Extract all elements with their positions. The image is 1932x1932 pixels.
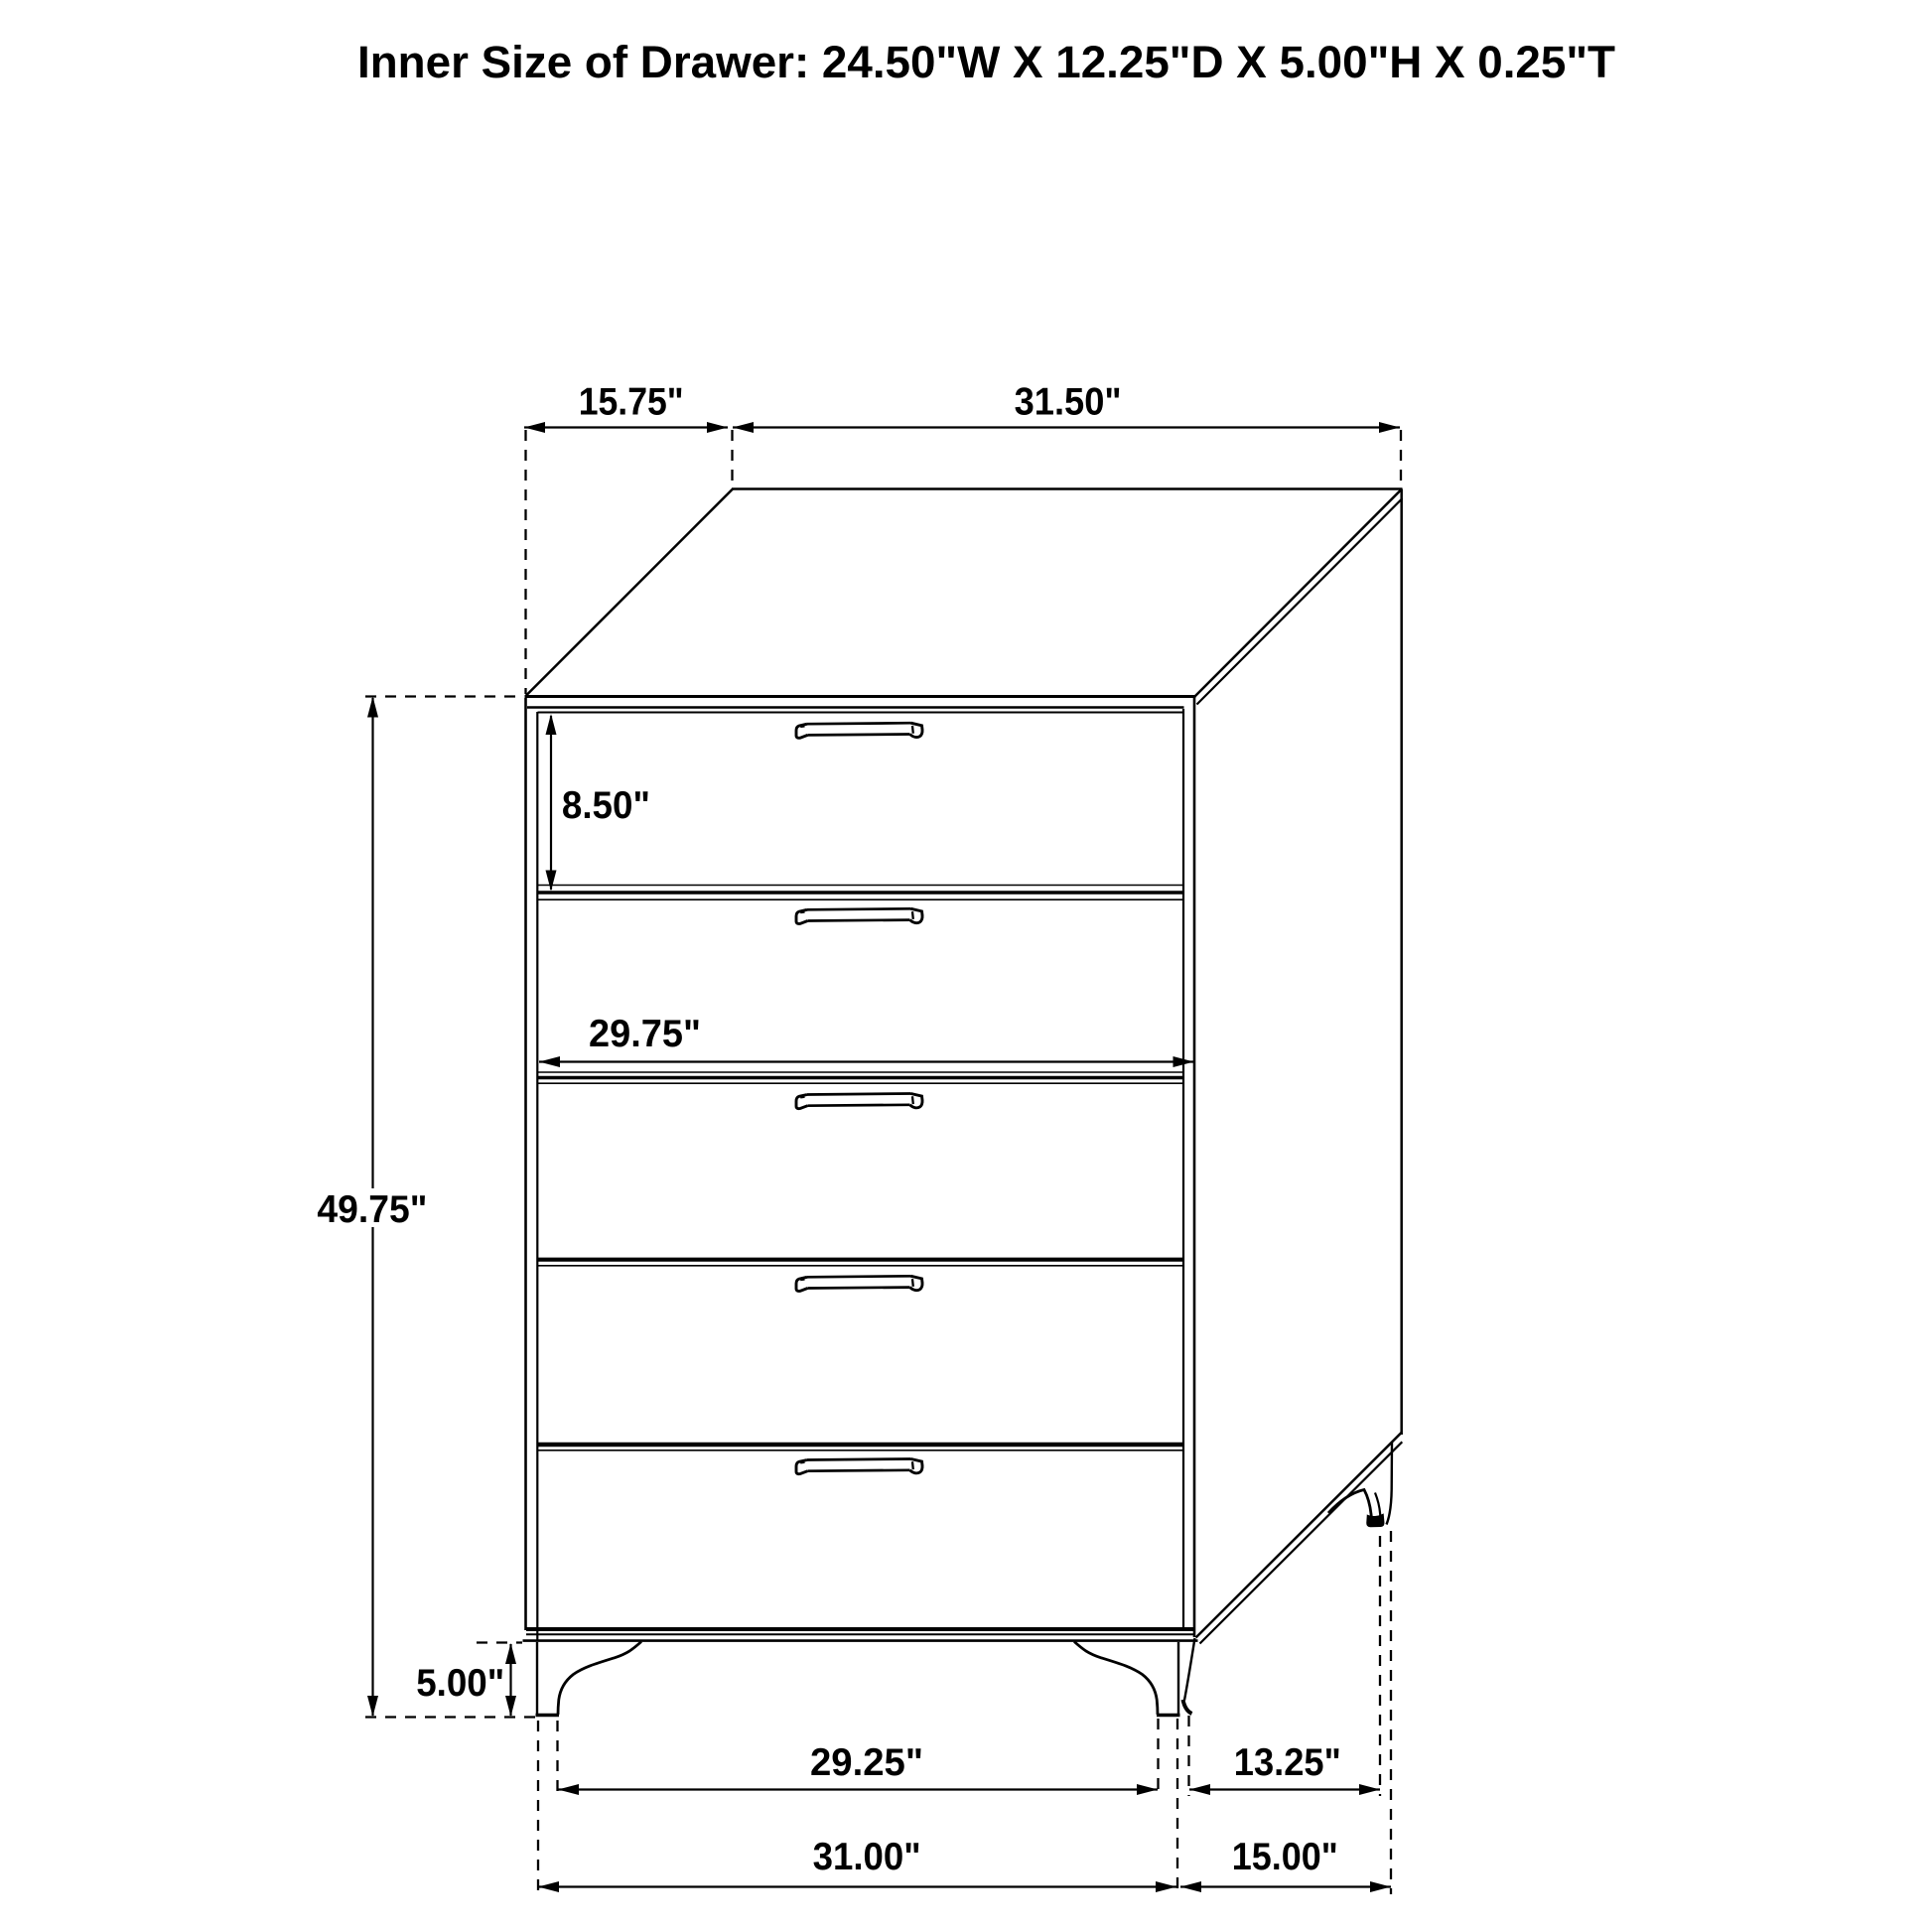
svg-text:29.25": 29.25": [810, 1741, 923, 1784]
svg-text:8.50": 8.50": [562, 784, 650, 827]
svg-text:5.00": 5.00": [416, 1662, 504, 1705]
svg-text:31.00": 31.00": [813, 1836, 921, 1878]
svg-text:13.25": 13.25": [1234, 1741, 1341, 1784]
svg-text:Inner Size of Drawer: 24.50"W: Inner Size of Drawer: 24.50"W X 12.25"D …: [357, 37, 1615, 87]
svg-text:31.50": 31.50": [1015, 381, 1122, 424]
svg-text:15.75": 15.75": [579, 381, 684, 424]
svg-text:29.75": 29.75": [589, 1013, 701, 1055]
svg-text:15.00": 15.00": [1232, 1836, 1338, 1878]
svg-text:49.75": 49.75": [317, 1188, 427, 1231]
